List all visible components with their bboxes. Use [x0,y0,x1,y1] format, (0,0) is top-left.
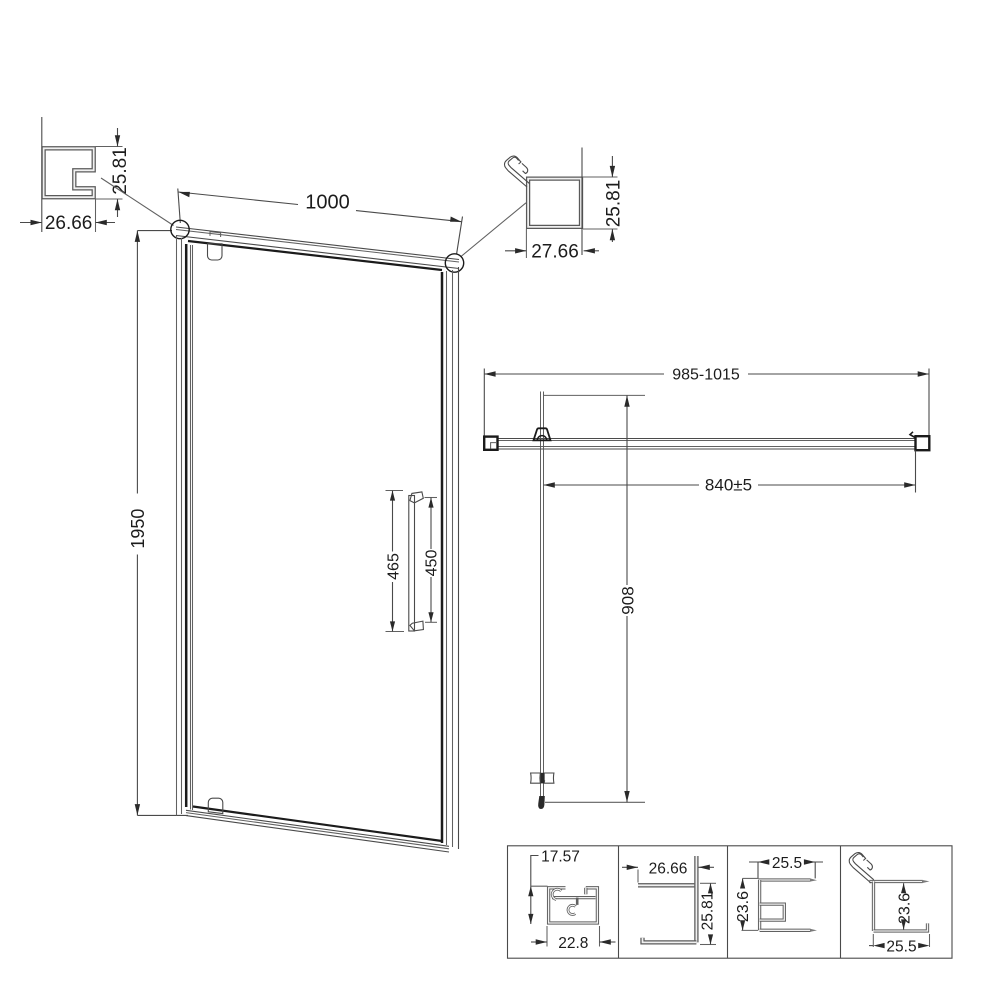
svg-text:23.6: 23.6 [896,893,913,924]
svg-text:25.5: 25.5 [886,939,916,956]
svg-text:17.57: 17.57 [541,849,580,866]
svg-text:1950: 1950 [128,509,148,549]
svg-text:450: 450 [423,550,440,577]
svg-text:1000: 1000 [305,192,350,214]
svg-text:26.66: 26.66 [649,860,688,877]
svg-text:840±5: 840±5 [705,476,752,495]
svg-text:25.81: 25.81 [604,180,625,228]
svg-text:26.66: 26.66 [45,213,93,234]
svg-text:985-1015: 985-1015 [672,367,740,384]
svg-text:465: 465 [385,553,402,580]
svg-text:25.81: 25.81 [110,147,131,195]
svg-text:27.66: 27.66 [531,241,579,262]
svg-text:908: 908 [618,586,637,614]
svg-text:25.5: 25.5 [772,855,802,872]
svg-text:22.8: 22.8 [558,935,588,952]
svg-text:25.81: 25.81 [700,892,717,931]
svg-text:23.6: 23.6 [735,891,752,922]
